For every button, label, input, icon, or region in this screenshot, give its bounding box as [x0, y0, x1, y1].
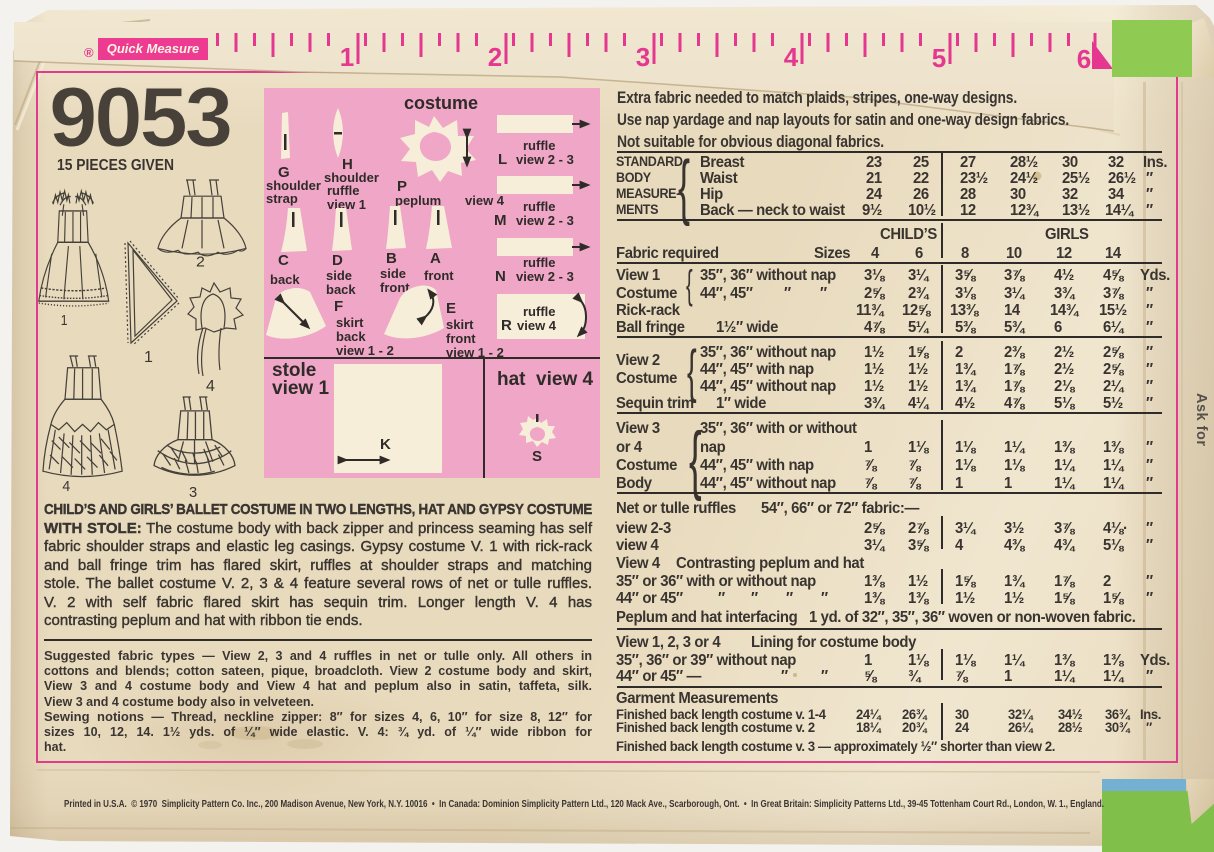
svg-text:4: 4: [62, 479, 70, 495]
svg-text:F: F: [334, 298, 343, 315]
svg-text:K: K: [380, 436, 391, 453]
svg-text:side: side: [326, 268, 352, 283]
svg-text:front: front: [446, 331, 476, 346]
svg-text:5: 5: [932, 43, 946, 73]
svg-text:strap: strap: [266, 191, 298, 206]
svg-text:ruffle: ruffle: [523, 304, 556, 319]
svg-text:view 2 - 3: view 2 - 3: [516, 269, 574, 284]
svg-text:L: L: [498, 151, 507, 168]
svg-text:S: S: [532, 448, 542, 465]
svg-text:back: back: [336, 329, 366, 344]
svg-text:D: D: [332, 252, 343, 269]
svg-text:view 4: view 4: [465, 193, 505, 208]
svg-text:R: R: [501, 317, 512, 334]
svg-text:side: side: [380, 266, 406, 281]
svg-text:back: back: [326, 282, 356, 297]
svg-text:view 2 - 3: view 2 - 3: [516, 152, 574, 167]
svg-text:ruffle: ruffle: [327, 183, 360, 198]
svg-text:view 1: view 1: [272, 378, 329, 399]
svg-text:1: 1: [61, 312, 68, 329]
svg-text:M: M: [494, 212, 507, 229]
svg-text:view 1: view 1: [327, 197, 366, 212]
svg-text:back: back: [270, 272, 300, 287]
svg-text:3: 3: [636, 42, 650, 72]
svg-text:peplum: peplum: [395, 193, 441, 208]
svg-text:3: 3: [189, 485, 197, 501]
svg-text:4: 4: [206, 378, 215, 395]
svg-text:view 1 - 2: view 1 - 2: [336, 343, 394, 358]
svg-text:E: E: [446, 300, 456, 317]
svg-text:costume: costume: [404, 93, 478, 113]
svg-text:C: C: [278, 252, 289, 269]
svg-text:ruffle: ruffle: [523, 138, 556, 153]
svg-text:ruffle: ruffle: [523, 199, 556, 214]
svg-text:view 4: view 4: [517, 318, 557, 333]
svg-text:4: 4: [784, 42, 799, 72]
svg-text:1: 1: [144, 349, 153, 366]
svg-text:skirt: skirt: [336, 315, 364, 330]
svg-text:2: 2: [196, 254, 205, 271]
svg-text:A: A: [430, 250, 441, 267]
svg-text:skirt: skirt: [446, 317, 474, 332]
svg-text:6: 6: [1077, 44, 1091, 74]
svg-text:view 2 - 3: view 2 - 3: [516, 213, 574, 228]
svg-text:ruffle: ruffle: [523, 255, 556, 270]
svg-text:B: B: [386, 250, 397, 267]
svg-text:hat view 4: hat view 4: [497, 369, 594, 390]
svg-text:front: front: [424, 268, 454, 283]
svg-text:N: N: [495, 268, 506, 285]
